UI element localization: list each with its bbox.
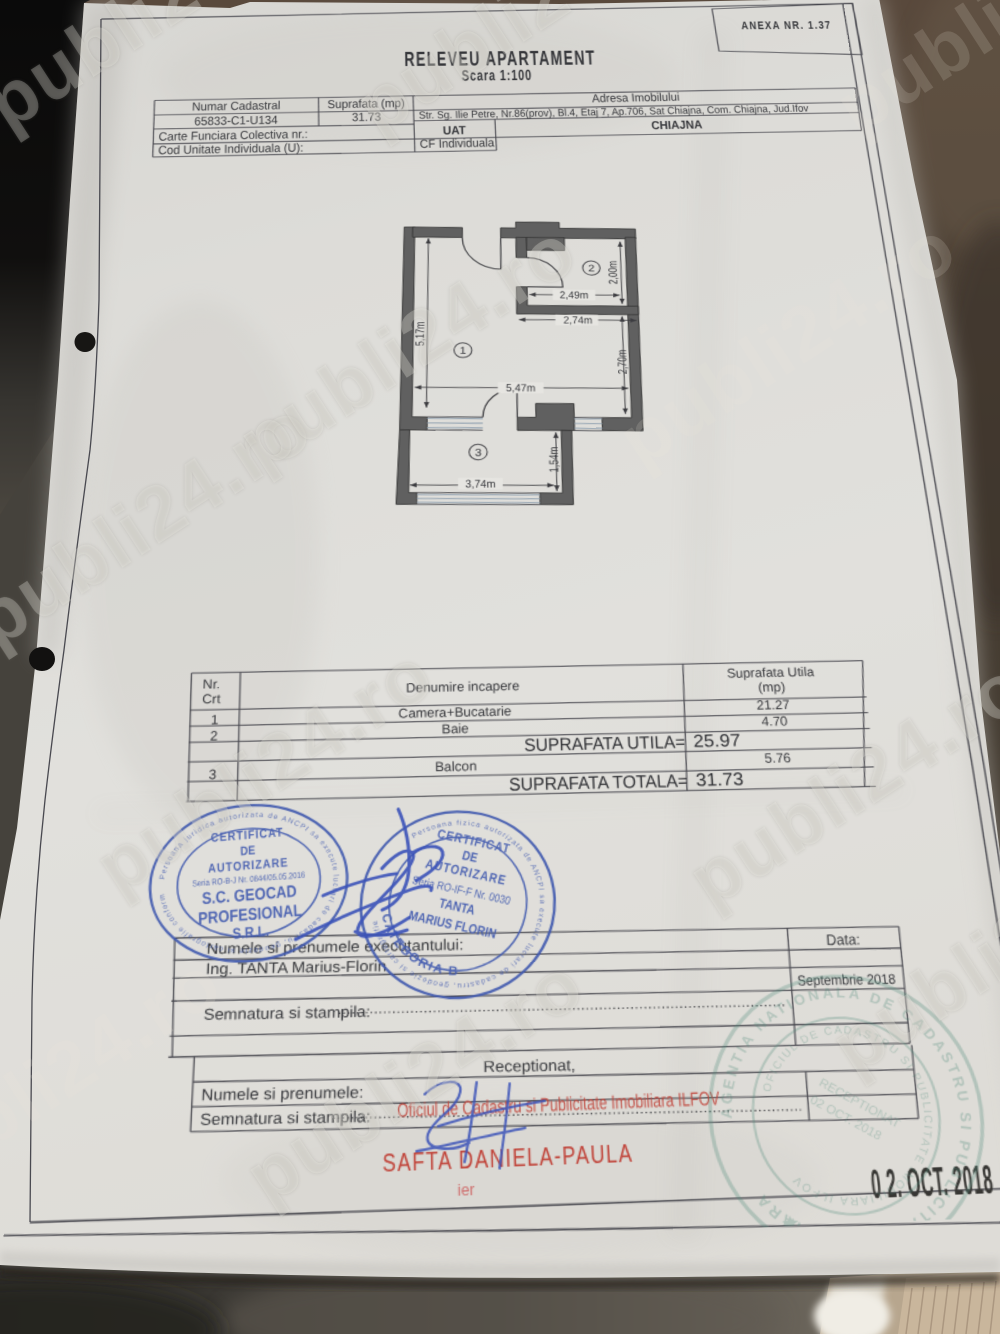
svg-text:Data:: Data: [826,932,861,949]
svg-text:Nr.: Nr. [203,677,221,692]
svg-text:Suprafata Utila: Suprafata Utila [726,665,814,681]
svg-text:Crt: Crt [202,692,221,707]
svg-text:Str. Sg. Ilie Petre, Nr.86(pro: Str. Sg. Ilie Petre, Nr.86(prov), Bl.4, … [419,103,810,121]
svg-text:Balcon: Balcon [435,759,477,775]
svg-text:5.76: 5.76 [764,751,791,767]
svg-text:UAT: UAT [443,125,467,138]
svg-text:CF Individuala: CF Individuala [420,137,496,151]
svg-text:1,54m: 1,54m [547,447,562,473]
svg-text:SAFTA DANIELA-PAULA: SAFTA DANIELA-PAULA [382,1138,634,1178]
svg-text:25.97: 25.97 [693,732,742,752]
svg-text:ier: ier [457,1182,475,1200]
svg-text:Numar Cadastral: Numar Cadastral [192,100,281,114]
svg-text:SUPRAFATA TOTALA=: SUPRAFATA TOTALA= [509,771,689,794]
svg-text:2: 2 [588,264,595,275]
svg-text:SUPRAFATA UTILA=: SUPRAFATA UTILA= [524,732,686,755]
svg-text:21.27: 21.27 [756,698,790,713]
svg-text:DE: DE [461,848,480,865]
svg-text:Cod Unitate Individuala (U):: Cod Unitate Individuala (U): [158,142,303,157]
svg-text:DE: DE [240,843,256,858]
svg-text:1: 1 [210,713,218,728]
svg-text:2,70m: 2,70m [616,350,631,375]
svg-text:ANEXA NR. 1.37: ANEXA NR. 1.37 [741,19,833,32]
svg-text:CHIAJNA: CHIAJNA [651,119,703,132]
svg-text:(mp): (mp) [758,680,786,695]
svg-text:3: 3 [475,448,482,460]
svg-text:65833-C1-U134: 65833-C1-U134 [194,114,278,128]
svg-text:2,74m: 2,74m [563,314,592,326]
svg-text:S.R.L.: S.R.L. [232,924,269,943]
svg-text:3,74m: 3,74m [465,477,496,490]
svg-text:4.70: 4.70 [761,714,788,729]
svg-text:31.73: 31.73 [695,770,744,791]
svg-text:2,00m: 2,00m [607,261,621,285]
svg-text:5,47m: 5,47m [506,381,536,393]
svg-text:AUTORIZARE: AUTORIZARE [208,855,289,876]
svg-text:2: 2 [210,729,218,744]
svg-text:Adresa Imobilului: Adresa Imobilului [592,92,681,106]
svg-text:Baie: Baie [442,722,469,737]
